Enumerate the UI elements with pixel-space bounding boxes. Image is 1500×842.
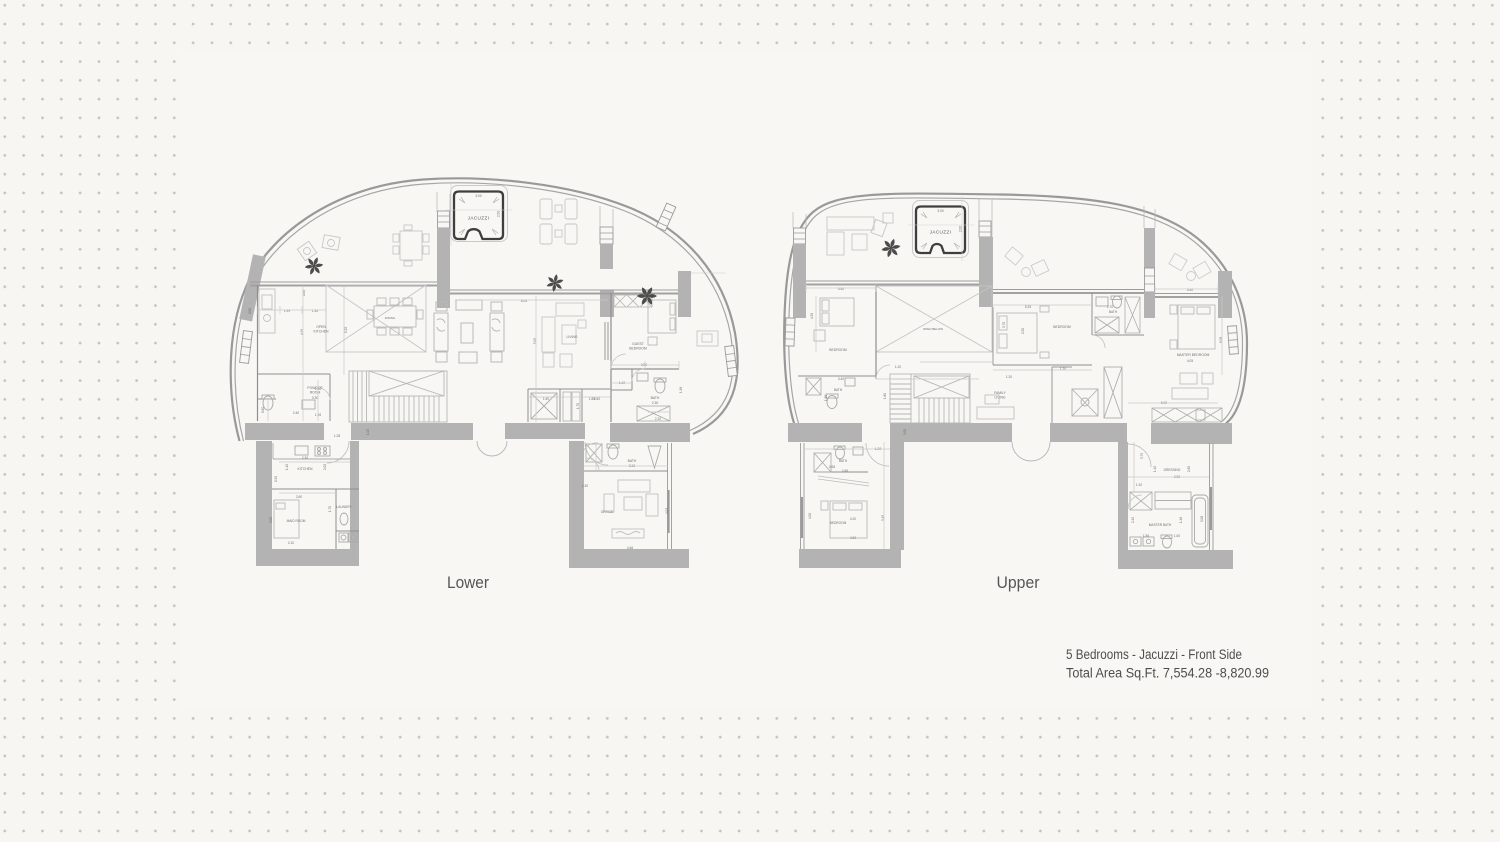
- svg-text:OPEN: OPEN: [316, 325, 326, 329]
- svg-text:MAID ROOM: MAID ROOM: [287, 519, 306, 523]
- svg-text:BEDROOM: BEDROOM: [829, 348, 847, 352]
- svg-text:3.40: 3.40: [838, 287, 844, 291]
- svg-text:1.80: 1.80: [883, 393, 887, 399]
- svg-text:5.00: 5.00: [533, 338, 537, 344]
- svg-text:3.00: 3.00: [937, 209, 943, 213]
- svg-text:2.40: 2.40: [293, 411, 299, 415]
- svg-text:1.60: 1.60: [543, 397, 549, 401]
- svg-text:0.60: 0.60: [594, 397, 600, 401]
- svg-text:BATH: BATH: [1109, 310, 1118, 314]
- svg-text:Lower: Lower: [447, 574, 489, 592]
- svg-text:1.46: 1.46: [1179, 517, 1183, 523]
- svg-text:4.26: 4.26: [810, 313, 814, 319]
- svg-text:4.05: 4.05: [1187, 359, 1193, 363]
- svg-text:1.20: 1.20: [1006, 375, 1012, 379]
- svg-text:1.40: 1.40: [285, 464, 289, 470]
- svg-text:BEDROOM: BEDROOM: [1053, 325, 1071, 329]
- svg-text:8.05: 8.05: [521, 299, 527, 303]
- svg-text:2.10: 2.10: [288, 541, 294, 545]
- svg-text:1.28: 1.28: [334, 434, 340, 438]
- svg-text:1.70: 1.70: [328, 506, 332, 512]
- svg-text:DINING: DINING: [385, 316, 396, 320]
- svg-text:4.03: 4.03: [665, 508, 669, 514]
- svg-text:2.20: 2.20: [655, 417, 661, 421]
- svg-text:JACUZZI: JACUZZI: [930, 230, 952, 235]
- svg-text:5.25: 5.25: [344, 327, 348, 333]
- svg-text:BATH: BATH: [834, 388, 843, 392]
- svg-text:2.66: 2.66: [842, 469, 848, 473]
- svg-text:ROOM: ROOM: [310, 391, 321, 395]
- svg-text:3.00: 3.00: [269, 517, 273, 523]
- svg-text:1.98: 1.98: [679, 387, 683, 393]
- svg-text:1.70: 1.70: [576, 403, 580, 409]
- svg-text:2.60: 2.60: [296, 495, 302, 499]
- svg-text:2.66: 2.66: [829, 465, 835, 469]
- svg-text:1.20: 1.20: [1060, 367, 1066, 371]
- svg-text:BATH: BATH: [651, 396, 660, 400]
- svg-text:2.50: 2.50: [1021, 328, 1025, 334]
- svg-text:2.00: 2.00: [497, 211, 501, 217]
- svg-text:4.00: 4.00: [808, 513, 812, 519]
- svg-text:0.60: 0.60: [248, 308, 252, 314]
- svg-text:1.00: 1.00: [824, 395, 828, 401]
- svg-text:LIVING: LIVING: [566, 335, 577, 339]
- svg-text:2.70: 2.70: [1107, 305, 1113, 309]
- svg-text:3.70: 3.70: [1002, 322, 1006, 328]
- svg-text:GUEST: GUEST: [632, 342, 644, 346]
- svg-text:OPEN BELOW: OPEN BELOW: [923, 327, 943, 331]
- svg-text:1.00: 1.00: [366, 429, 370, 435]
- svg-text:BATH: BATH: [628, 459, 637, 463]
- svg-text:MASTER BATH: MASTER BATH: [1149, 523, 1172, 527]
- svg-text:3.00: 3.00: [903, 429, 907, 435]
- svg-text:3.40: 3.40: [1187, 288, 1193, 292]
- svg-text:Total Area Sq.Ft. 7,554.28 -: Total Area Sq.Ft. 7,554.28 -8,820.99: [1066, 666, 1269, 682]
- svg-text:3.00: 3.00: [475, 194, 481, 198]
- svg-text:3.30: 3.30: [312, 396, 319, 400]
- svg-text:1.40: 1.40: [1153, 466, 1157, 472]
- svg-text:3.45: 3.45: [881, 515, 885, 521]
- svg-text:5.25: 5.25: [1025, 305, 1031, 309]
- svg-text:FAMILY: FAMILY: [994, 391, 1007, 395]
- svg-text:2.30: 2.30: [302, 456, 308, 460]
- svg-text:1.55: 1.55: [1143, 534, 1149, 538]
- svg-text:1.99: 1.99: [284, 309, 290, 313]
- svg-text:4.46: 4.46: [627, 546, 633, 550]
- svg-text:BATH: BATH: [839, 459, 848, 463]
- svg-text:0.90: 0.90: [274, 476, 278, 482]
- svg-text:3.75: 3.75: [1140, 453, 1144, 459]
- svg-text:5 Bedrooms - Jacuzzi - Front S: 5 Bedrooms - Jacuzzi - Front Side: [1066, 647, 1242, 663]
- svg-text:LIVING: LIVING: [994, 396, 1005, 400]
- svg-text:1.60: 1.60: [1174, 534, 1180, 538]
- svg-text:0.60: 0.60: [261, 407, 265, 413]
- svg-text:JACUZZI: JACUZZI: [468, 216, 490, 221]
- svg-text:0.66: 0.66: [302, 290, 306, 296]
- svg-text:LAUNDRY: LAUNDRY: [336, 505, 352, 509]
- svg-text:4.20: 4.20: [850, 517, 856, 521]
- svg-text:OFFICE: OFFICE: [601, 510, 614, 514]
- svg-text:1.20: 1.20: [895, 365, 901, 369]
- svg-text:2.00: 2.00: [323, 464, 327, 470]
- svg-text:Upper: Upper: [997, 574, 1040, 592]
- svg-text:KITCHEN: KITCHEN: [298, 467, 313, 471]
- svg-text:MASTER BEDROOM: MASTER BEDROOM: [1177, 353, 1210, 357]
- svg-text:3.40: 3.40: [838, 377, 844, 381]
- svg-text:4.95: 4.95: [300, 329, 304, 335]
- svg-text:BEDROOM: BEDROOM: [830, 521, 847, 525]
- svg-text:KITCHEN: KITCHEN: [314, 330, 329, 334]
- svg-text:2.30: 2.30: [652, 401, 659, 405]
- svg-text:4.20: 4.20: [850, 536, 856, 540]
- svg-text:DRESSING: DRESSING: [1164, 468, 1181, 472]
- svg-text:1.30: 1.30: [312, 309, 318, 313]
- svg-text:BEDROOM: BEDROOM: [629, 347, 647, 351]
- svg-text:6.08: 6.08: [1219, 337, 1223, 343]
- svg-text:2.40: 2.40: [1131, 517, 1135, 523]
- svg-text:2.60: 2.60: [1187, 466, 1191, 472]
- svg-text:1.20: 1.20: [1136, 483, 1142, 487]
- svg-text:1.30: 1.30: [582, 484, 588, 488]
- svg-text:3.08: 3.08: [1200, 516, 1204, 522]
